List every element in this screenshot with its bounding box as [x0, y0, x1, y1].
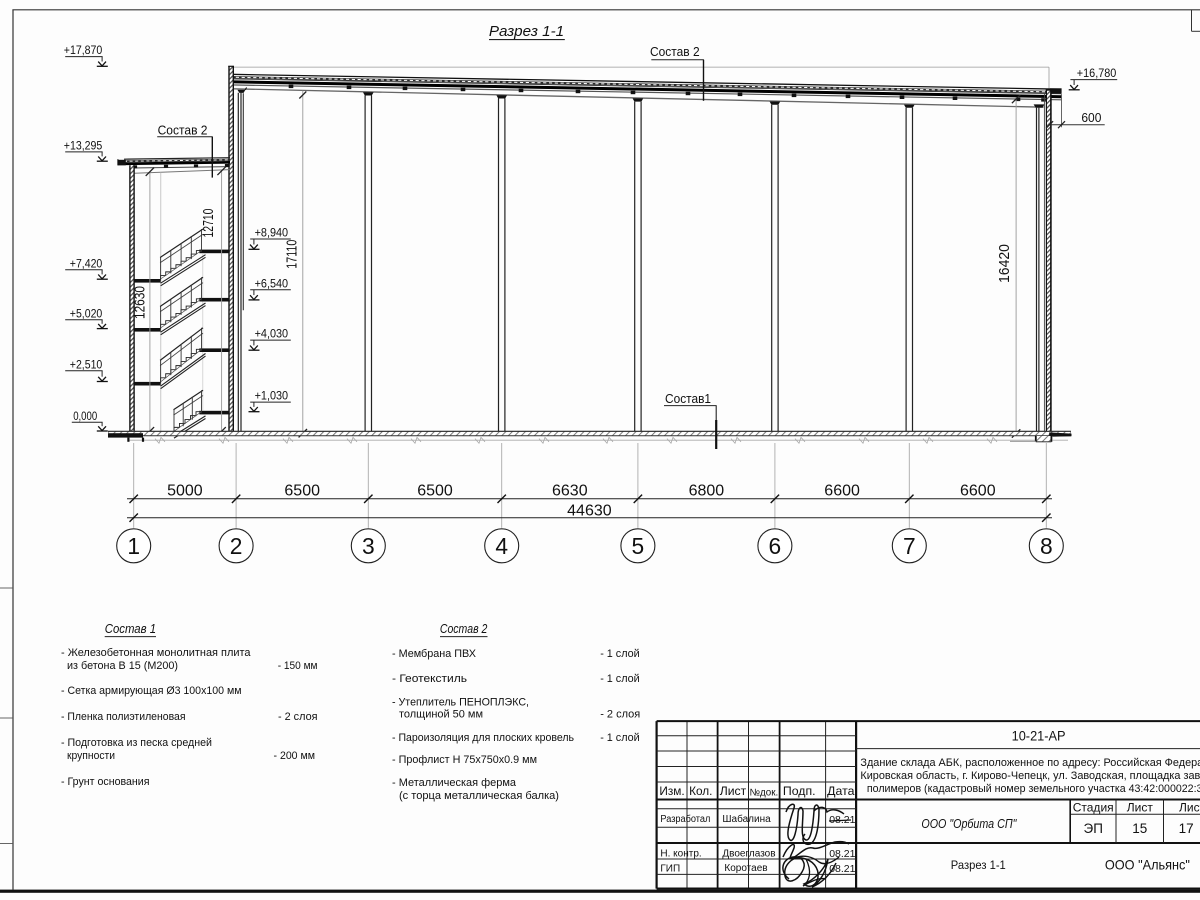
- svg-text:Стадия: Стадия: [1073, 801, 1114, 815]
- svg-text:+1,030: +1,030: [255, 389, 289, 403]
- svg-text:Подп.: Подп.: [783, 784, 816, 798]
- svg-text:+7,420: +7,420: [70, 256, 103, 270]
- svg-text:ООО "Альянс": ООО "Альянс": [1105, 857, 1190, 872]
- svg-text:Лист: Лист: [1127, 801, 1154, 815]
- svg-text:6600: 6600: [824, 483, 860, 500]
- svg-text:- Пароизоляция для плоских кро: - Пароизоляция для плоских кровель: [392, 732, 574, 744]
- svg-text:Дата: Дата: [827, 784, 854, 798]
- svg-text:44630: 44630: [567, 502, 612, 519]
- svg-text:ГИП: ГИП: [660, 864, 680, 875]
- svg-text:6: 6: [769, 533, 782, 559]
- svg-text:+2,510: +2,510: [70, 357, 103, 371]
- svg-text:- Подготовка из песка средней: - Подготовка из песка средней: [61, 737, 212, 749]
- svg-text:Состав1: Состав1: [665, 391, 711, 406]
- svg-text:- Железобетонная монолитная п: - Железобетонная монолитная плита: [61, 647, 251, 659]
- svg-text:- 2 слоя: - 2 слоя: [600, 709, 640, 721]
- svg-text:+8,940: +8,940: [255, 226, 289, 240]
- svg-text:- Сетка армирующая Ø3 100х100: - Сетка армирующая Ø3 100х100 мм: [61, 685, 242, 697]
- svg-text:6600: 6600: [960, 483, 996, 500]
- svg-text:7: 7: [903, 533, 916, 559]
- svg-text:5: 5: [632, 533, 645, 559]
- svg-text:+13,295: +13,295: [64, 139, 103, 153]
- svg-text:+16,780: +16,780: [1077, 66, 1117, 80]
- svg-text:4: 4: [495, 533, 508, 559]
- svg-text:+4,030: +4,030: [255, 327, 289, 341]
- svg-text:12710: 12710: [201, 209, 217, 238]
- svg-text:- Металлическая ферма: - Металлическая ферма: [392, 777, 517, 789]
- svg-text:Двоеглазов: Двоеглазов: [722, 848, 775, 859]
- svg-text:6500: 6500: [417, 483, 453, 500]
- svg-text:- 150 мм: - 150 мм: [278, 660, 318, 672]
- svg-text:Листов: Листов: [1179, 801, 1200, 815]
- svg-text:3: 3: [362, 533, 375, 559]
- svg-text:Лист: Лист: [720, 784, 747, 798]
- svg-text:полимеров (кадастровый номер з: полимеров (кадастровый номер земельного …: [867, 783, 1200, 795]
- svg-text:1: 1: [127, 533, 140, 559]
- svg-text:Состав 2: Состав 2: [158, 123, 208, 138]
- svg-text:- 2 слоя: - 2 слоя: [278, 711, 318, 723]
- svg-text:- Геотекстиль: - Геотекстиль: [392, 673, 467, 685]
- svg-text:Кол.: Кол.: [689, 784, 712, 798]
- svg-text:Состав 1: Состав 1: [105, 621, 156, 636]
- svg-text:Состав 2: Состав 2: [440, 621, 488, 636]
- svg-text:Здание склада АБК, расположенн: Здание склада АБК, расположенное по адре…: [860, 757, 1200, 769]
- svg-text:Н. контр.: Н. контр.: [660, 848, 701, 859]
- svg-text:Разрез 1-1: Разрез 1-1: [489, 23, 564, 40]
- svg-text:- Утеплитель ПЕНОПЛЭКС,: - Утеплитель ПЕНОПЛЭКС,: [392, 696, 529, 708]
- svg-text:10-21-АР: 10-21-АР: [1012, 729, 1066, 744]
- svg-text:+5,020: +5,020: [70, 306, 103, 320]
- svg-text:2: 2: [230, 533, 243, 559]
- svg-text:ООО "Орбита СП": ООО "Орбита СП": [921, 817, 1016, 831]
- svg-text:Коротаев: Коротаев: [724, 863, 767, 874]
- svg-text:Шабалина: Шабалина: [722, 813, 771, 825]
- svg-text:- Мембрана ПВХ: - Мембрана ПВХ: [392, 648, 477, 660]
- svg-text:№док.: №док.: [750, 787, 779, 798]
- svg-text:+17,870: +17,870: [64, 43, 103, 57]
- svg-text:Разработал: Разработал: [660, 813, 710, 825]
- svg-text:17: 17: [1179, 821, 1194, 836]
- svg-text:Кировская область, г. Кирово-Ч: Кировская область, г. Кирово-Чепецк, ул.…: [860, 770, 1200, 782]
- svg-text:- 200 мм: - 200 мм: [274, 750, 316, 762]
- svg-text:0,000: 0,000: [73, 409, 97, 423]
- svg-text:крупности: крупности: [67, 750, 115, 762]
- svg-text:08.21: 08.21: [829, 848, 855, 860]
- svg-text:+6,540: +6,540: [255, 276, 289, 290]
- svg-text:- Пленка полиэтиленовая: - Пленка полиэтиленовая: [61, 711, 186, 723]
- svg-text:6500: 6500: [284, 483, 320, 500]
- svg-text:(с торца металлическая балка): (с торца металлическая балка): [399, 790, 559, 802]
- svg-text:Изм.: Изм.: [659, 784, 684, 798]
- svg-text:- 1 слой: - 1 слой: [600, 673, 640, 685]
- svg-text:8: 8: [1040, 533, 1053, 559]
- svg-text:12630: 12630: [133, 286, 149, 319]
- svg-text:6800: 6800: [689, 483, 725, 500]
- svg-text:17110: 17110: [285, 240, 301, 269]
- svg-text:5000: 5000: [167, 483, 203, 500]
- svg-text:- Профлист Н 75х750х0.9 мм: - Профлист Н 75х750х0.9 мм: [392, 754, 537, 766]
- svg-text:15: 15: [1132, 821, 1147, 836]
- svg-text:Состав 2: Состав 2: [650, 44, 700, 59]
- svg-text:16420: 16420: [997, 244, 1013, 283]
- svg-text:- 1 слой: - 1 слой: [600, 732, 640, 744]
- svg-text:Разрез 1-1: Разрез 1-1: [951, 858, 1006, 872]
- svg-text:600: 600: [1081, 110, 1101, 125]
- svg-text:- Грунт основания: - Грунт основания: [61, 776, 150, 788]
- svg-text:6630: 6630: [552, 483, 588, 500]
- svg-text:толщиной 50 мм: толщиной 50 мм: [399, 709, 483, 721]
- svg-text:- 1 слой: - 1 слой: [600, 648, 640, 660]
- svg-text:ЭП: ЭП: [1083, 821, 1102, 836]
- svg-text:из бетона В 15 (М200): из бетона В 15 (М200): [67, 660, 178, 672]
